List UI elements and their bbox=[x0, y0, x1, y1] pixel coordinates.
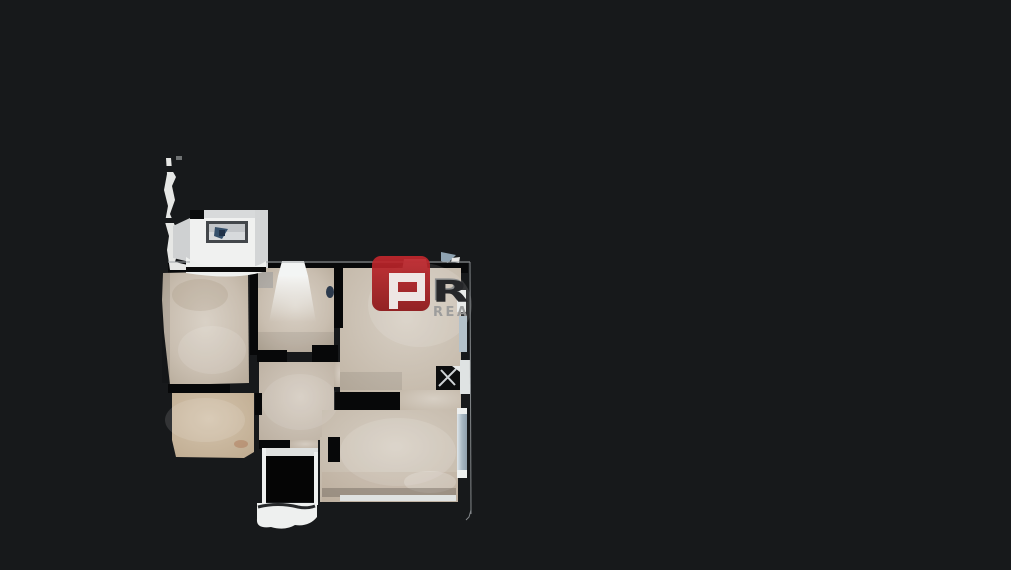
structure-left-wedge bbox=[173, 218, 190, 262]
desk-item-shadow bbox=[219, 230, 225, 236]
structure-bottom-gap bbox=[186, 267, 266, 272]
structure-right-column bbox=[255, 210, 268, 268]
top-structure[interactable] bbox=[173, 210, 268, 277]
floorplan-svg[interactable]: R R REA bbox=[0, 0, 1011, 570]
vestibule-top-band bbox=[263, 448, 318, 456]
room-right-bottom[interactable] bbox=[320, 410, 458, 502]
x-marker-icon bbox=[436, 366, 460, 390]
floor-object-dark bbox=[326, 286, 334, 298]
vestibule[interactable] bbox=[257, 448, 318, 529]
logo-subtitle: REA bbox=[433, 305, 469, 320]
viewer-canvas[interactable]: R R REA bbox=[0, 0, 1011, 570]
room-right-connector bbox=[400, 390, 461, 412]
vestibule-interior bbox=[266, 448, 314, 502]
vestibule-right-wall bbox=[314, 452, 318, 505]
room-middle[interactable] bbox=[257, 268, 334, 352]
room-bottom-left[interactable] bbox=[172, 393, 254, 458]
room-top-left[interactable] bbox=[162, 271, 249, 385]
structure-notch bbox=[190, 210, 204, 219]
hall-step bbox=[290, 440, 318, 449]
